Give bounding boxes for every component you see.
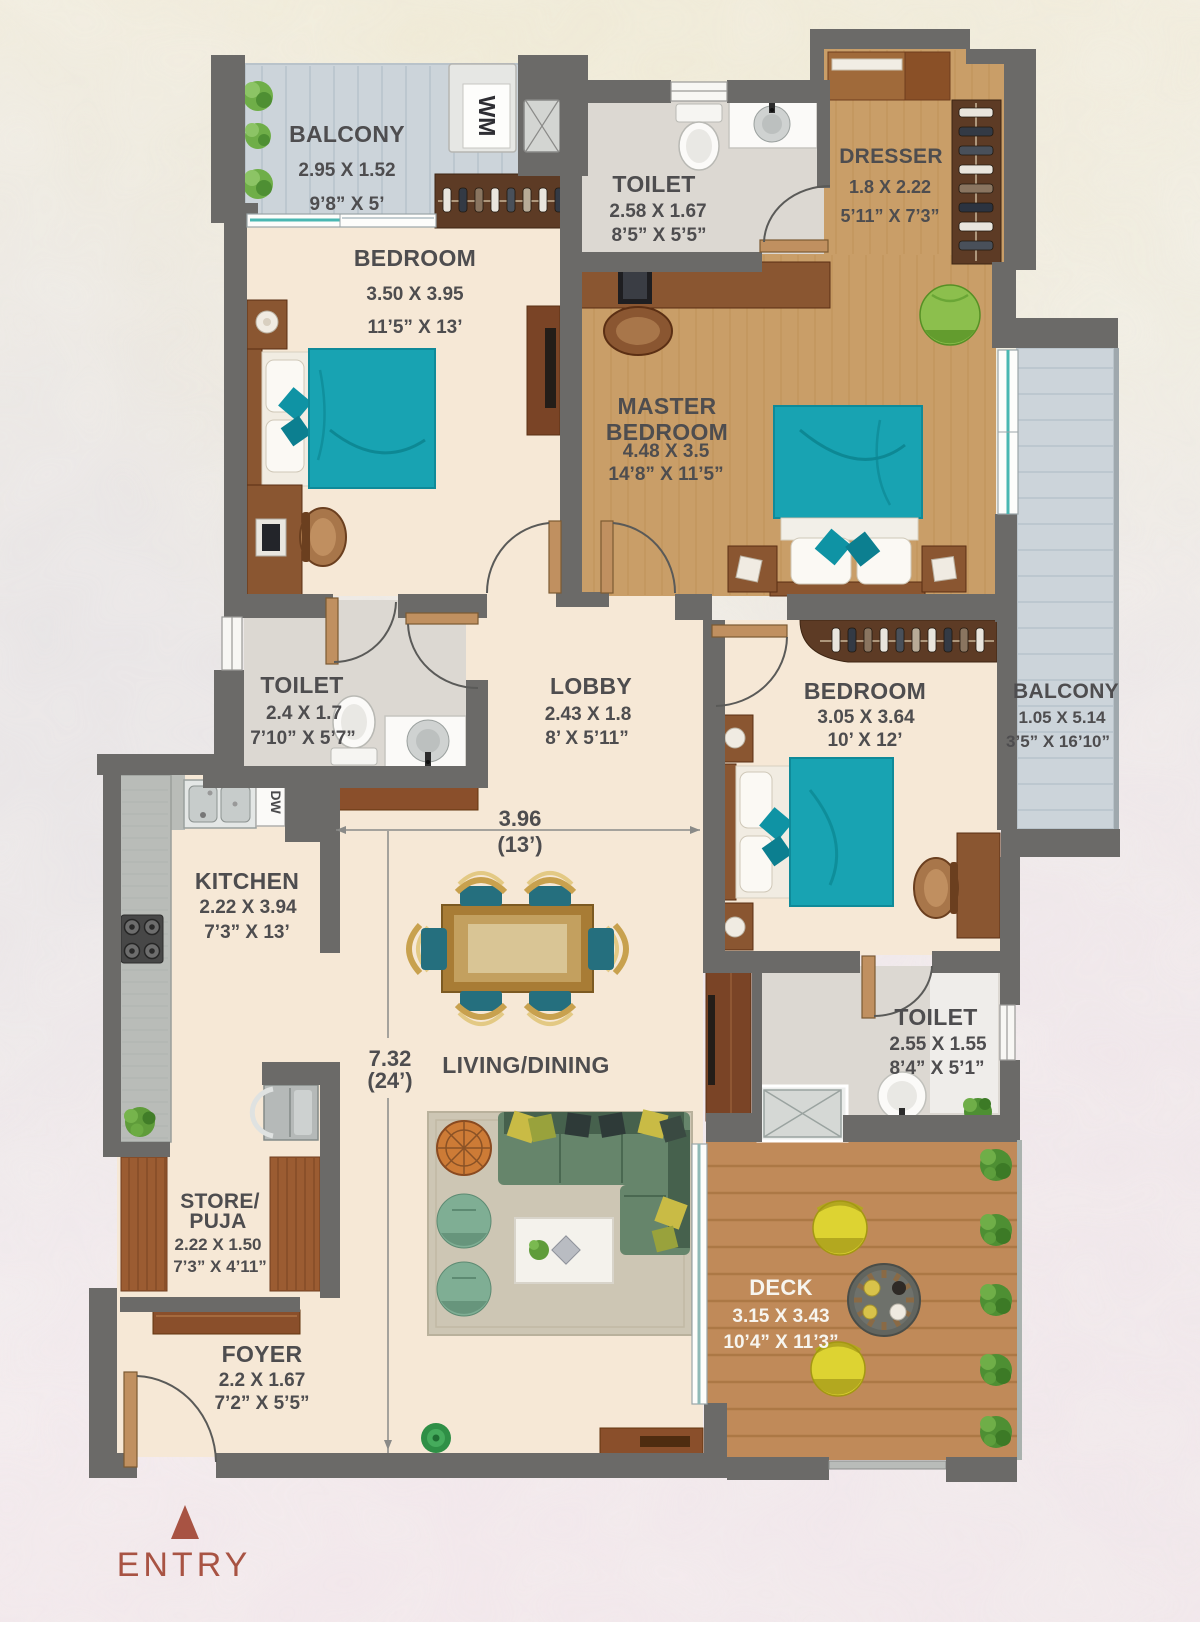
svg-text:BEDROOM: BEDROOM [804,678,926,704]
svg-text:8’ X 5’11”: 8’ X 5’11” [545,728,628,749]
svg-text:7’3” X 4’11”: 7’3” X 4’11” [173,1257,267,1276]
svg-text:1.8 X 2.22: 1.8 X 2.22 [849,177,931,197]
svg-text:WM: WM [474,96,500,137]
svg-text:2.95 X 1.52: 2.95 X 1.52 [298,160,395,181]
svg-text:ENTRY: ENTRY [117,1546,252,1584]
svg-text:2.43 X 1.8: 2.43 X 1.8 [545,704,632,725]
svg-text:7’10” X 5’7”: 7’10” X 5’7” [250,728,356,749]
svg-text:5’11” X 7’3”: 5’11” X 7’3” [840,206,939,226]
svg-text:PUJA: PUJA [189,1210,246,1233]
svg-text:MASTER: MASTER [618,393,717,419]
svg-text:2.4 X 1.7: 2.4 X 1.7 [266,703,342,724]
svg-text:7’2” X 5’5”: 7’2” X 5’5” [214,1393,309,1414]
svg-text:BEDROOM: BEDROOM [354,245,476,271]
svg-text:3.05 X 3.64: 3.05 X 3.64 [817,707,915,728]
svg-text:DRESSER: DRESSER [839,145,943,168]
svg-text:BALCONY: BALCONY [289,121,405,147]
svg-text:BALCONY: BALCONY [1013,680,1119,703]
svg-text:TOILET: TOILET [894,1004,977,1030]
svg-text:2.22 X 3.94: 2.22 X 3.94 [199,897,297,918]
svg-text:8’4” X 5’1”: 8’4” X 5’1” [889,1058,984,1079]
svg-text:7’3” X 13’: 7’3” X 13’ [204,922,290,943]
svg-text:3.96: 3.96 [499,806,542,831]
svg-text:3’5” X 16’10”: 3’5” X 16’10” [1006,732,1110,751]
svg-text:2.22 X 1.50: 2.22 X 1.50 [175,1235,262,1254]
svg-text:3.15 X 3.43: 3.15 X 3.43 [732,1306,829,1327]
svg-text:1.05 X 5.14: 1.05 X 5.14 [1019,708,1107,727]
svg-text:KITCHEN: KITCHEN [195,868,299,894]
svg-text:DECK: DECK [749,1275,813,1300]
svg-text:(24’): (24’) [367,1068,412,1093]
svg-text:4.48 X 3.5: 4.48 X 3.5 [623,441,710,462]
svg-text:10’4” X 11’3”: 10’4” X 11’3” [723,1332,838,1353]
svg-text:3.50 X 3.95: 3.50 X 3.95 [366,284,464,305]
svg-text:2.2 X 1.67: 2.2 X 1.67 [219,1370,306,1391]
svg-text:(13’): (13’) [497,832,542,857]
svg-text:LIVING/DINING: LIVING/DINING [442,1052,609,1078]
svg-text:2.55 X 1.55: 2.55 X 1.55 [889,1034,987,1055]
svg-text:14’8” X 11’5”: 14’8” X 11’5” [608,464,723,485]
svg-text:8’5” X 5’5”: 8’5” X 5’5” [611,225,706,246]
svg-text:9’8” X 5’: 9’8” X 5’ [310,194,385,215]
svg-text:10’ X 12’: 10’ X 12’ [827,730,902,751]
svg-text:DW: DW [268,790,284,814]
svg-text:TOILET: TOILET [612,171,695,197]
svg-text:FOYER: FOYER [222,1341,303,1367]
svg-text:2.58 X 1.67: 2.58 X 1.67 [609,201,706,222]
svg-text:LOBBY: LOBBY [550,673,632,699]
svg-text:11’5” X 13’: 11’5” X 13’ [367,317,462,338]
svg-text:TOILET: TOILET [260,672,343,698]
